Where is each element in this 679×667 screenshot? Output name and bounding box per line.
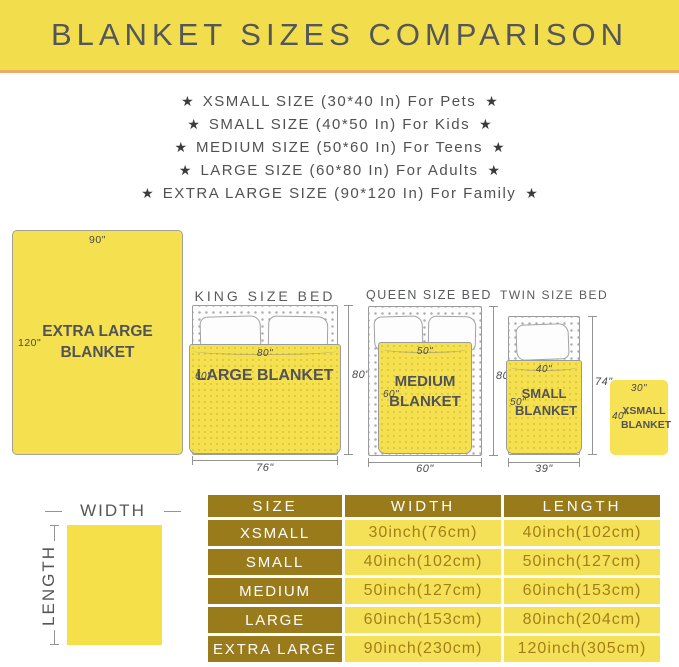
size-table: SIZE WIDTH LENGTH XSMALL 30inch(76cm) 40… bbox=[208, 495, 654, 662]
large-blanket-name: LARGE BLANKET bbox=[197, 365, 334, 386]
medium-blanket-name: MEDIUM BLANKET bbox=[389, 372, 461, 412]
table-row-label: MEDIUM bbox=[208, 578, 342, 604]
star-icon: ★ bbox=[492, 139, 505, 155]
list-item: ★XSMALL SIZE (30*40 In) For Pets★ bbox=[0, 90, 679, 113]
table-cell: 60inch(153cm) bbox=[504, 578, 660, 604]
table-header-size: SIZE bbox=[208, 495, 342, 517]
star-icon: ★ bbox=[179, 162, 192, 178]
star-icon: ★ bbox=[187, 116, 200, 132]
star-icon: ★ bbox=[485, 93, 498, 109]
xsmall-blanket-name: XSMALL BLANKET bbox=[621, 405, 667, 433]
banner: BLANKET SIZES COMPARISON bbox=[0, 0, 679, 73]
star-icon: ★ bbox=[525, 185, 538, 201]
table-cell: 40inch(102cm) bbox=[345, 549, 501, 575]
width-axis-label: WIDTH bbox=[63, 501, 163, 521]
large-blanket-figure: 80" 60" LARGE BLANKET bbox=[189, 344, 341, 454]
length-axis-label: LENGTH bbox=[39, 541, 59, 630]
small-blanket-figure: 40" 50" SMALL BLANKET bbox=[506, 360, 582, 454]
table-header-length: LENGTH bbox=[504, 495, 660, 517]
king-bed-width-label: 76" bbox=[192, 462, 338, 474]
medium-blanket-length-label: 60" bbox=[383, 389, 399, 400]
size-list: ★XSMALL SIZE (30*40 In) For Pets★ ★SMALL… bbox=[0, 90, 679, 205]
large-blanket-length-label: 60" bbox=[195, 371, 211, 382]
table-row-label: LARGE bbox=[208, 607, 342, 633]
table-header-width: WIDTH bbox=[345, 495, 501, 517]
width-dash bbox=[164, 511, 181, 512]
small-blanket-length-label: 50" bbox=[510, 397, 526, 408]
table-cell: 50inch(127cm) bbox=[504, 549, 660, 575]
star-icon: ★ bbox=[174, 139, 187, 155]
star-icon: ★ bbox=[479, 116, 492, 132]
medium-blanket-width-label: 50" bbox=[379, 346, 471, 357]
table-cell: 50inch(127cm) bbox=[345, 578, 501, 604]
width-dash bbox=[45, 511, 62, 512]
list-item-text: MEDIUM SIZE (50*60 In) For Teens bbox=[196, 139, 483, 156]
medium-blanket-figure: 50" 60" MEDIUM BLANKET bbox=[378, 342, 472, 454]
queen-bed-title: QUEEN SIZE BED bbox=[366, 288, 484, 302]
table-cell: 30inch(76cm) bbox=[345, 520, 501, 546]
list-item-text: XSMALL SIZE (30*40 In) For Pets bbox=[203, 93, 477, 110]
extra-large-blanket-figure: 90" 120" EXTRA LARGE BLANKET bbox=[12, 230, 183, 455]
table-cell: 60inch(153cm) bbox=[345, 607, 501, 633]
star-icon: ★ bbox=[181, 93, 194, 109]
list-item: ★EXTRA LARGE SIZE (90*120 In) For Family… bbox=[0, 182, 679, 205]
legend-blanket-swatch bbox=[67, 525, 162, 645]
star-icon: ★ bbox=[488, 162, 501, 178]
list-item: ★MEDIUM SIZE (50*60 In) For Teens★ bbox=[0, 136, 679, 159]
list-item-text: EXTRA LARGE SIZE (90*120 In) For Family bbox=[163, 185, 517, 202]
table-row-label: EXTRA LARGE bbox=[208, 636, 342, 662]
blanket-size-infographic: BLANKET SIZES COMPARISON ★XSMALL SIZE (3… bbox=[0, 0, 679, 667]
page-title: BLANKET SIZES COMPARISON bbox=[51, 17, 628, 53]
pillow bbox=[515, 323, 569, 361]
xl-length-label: 120" bbox=[18, 337, 41, 349]
list-item: ★SMALL SIZE (40*50 In) For Kids★ bbox=[0, 113, 679, 136]
xl-width-label: 90" bbox=[13, 234, 182, 246]
twin-bed-width-label: 39" bbox=[508, 463, 580, 475]
xl-blanket-name: EXTRA LARGE BLANKET bbox=[35, 322, 160, 363]
table-cell: 120inch(305cm) bbox=[504, 636, 660, 662]
length-axis-label-wrap: LENGTH bbox=[40, 525, 58, 645]
table-row-label: XSMALL bbox=[208, 520, 342, 546]
list-item-text: SMALL SIZE (40*50 In) For Kids bbox=[209, 116, 470, 133]
table-cell: 80inch(204cm) bbox=[504, 607, 660, 633]
large-blanket-width-label: 80" bbox=[190, 348, 340, 359]
queen-bed-width-label: 60" bbox=[368, 463, 482, 475]
table-row-label: SMALL bbox=[208, 549, 342, 575]
small-blanket-width-label: 40" bbox=[507, 364, 581, 375]
table-cell: 40inch(102cm) bbox=[504, 520, 660, 546]
xsmall-blanket-figure: 30" 40" XSMALL BLANKET bbox=[610, 380, 668, 455]
king-bed-length-label: 80" bbox=[352, 369, 370, 381]
list-item: ★LARGE SIZE (60*80 In) For Adults★ bbox=[0, 159, 679, 182]
table-cell: 90inch(230cm) bbox=[345, 636, 501, 662]
king-bed-title: KING SIZE BED bbox=[190, 288, 340, 304]
twin-bed-title: TWIN SIZE BED bbox=[500, 288, 596, 302]
list-item-text: LARGE SIZE (60*80 In) For Adults bbox=[200, 162, 478, 179]
star-icon: ★ bbox=[141, 185, 154, 201]
xsmall-blanket-width-label: 30" bbox=[610, 383, 668, 394]
